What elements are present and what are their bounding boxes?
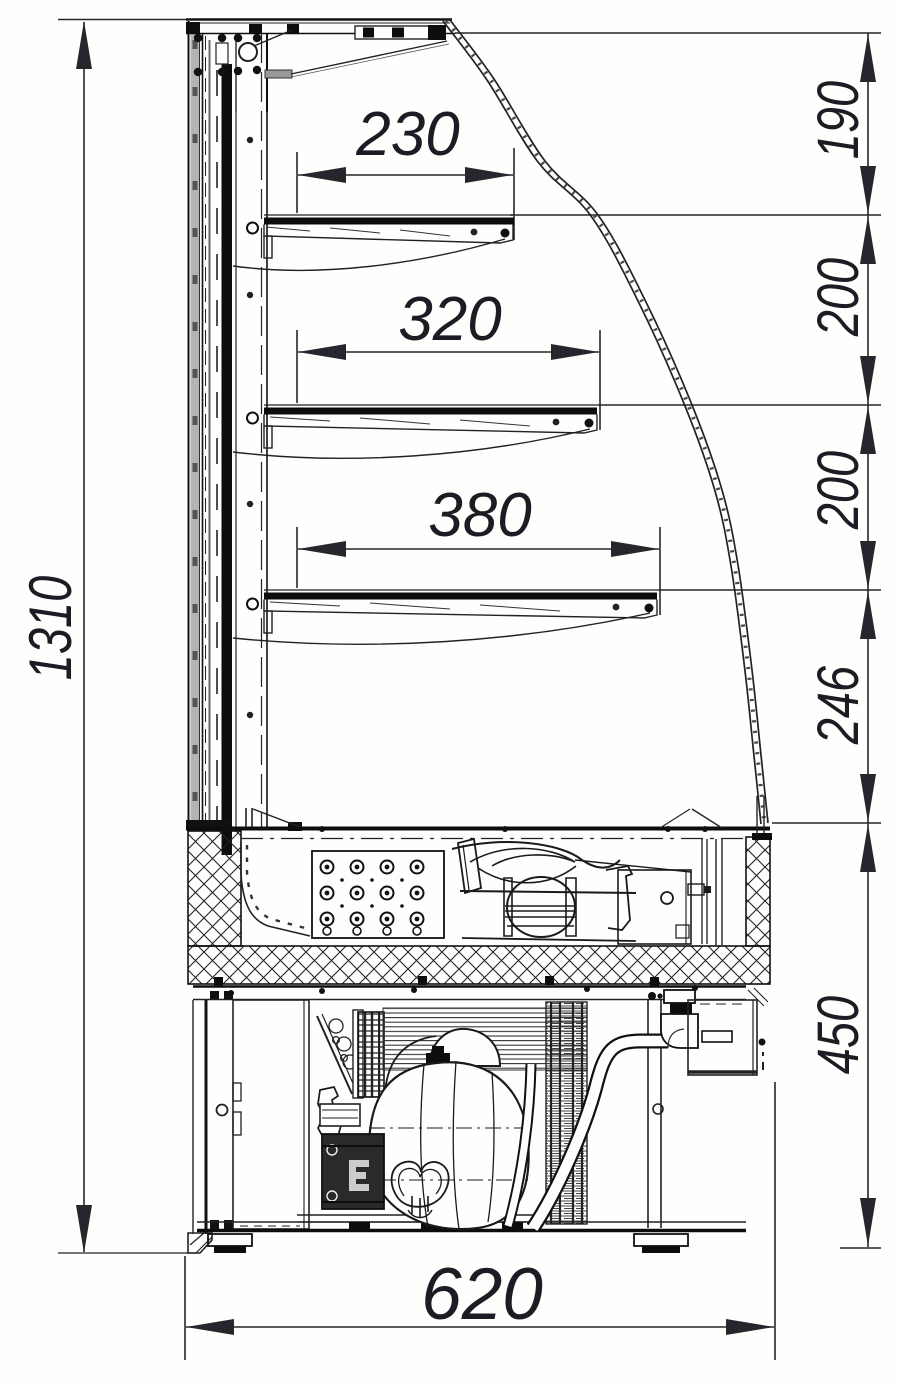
- svg-text:320: 320: [398, 285, 501, 354]
- svg-text:450: 450: [806, 995, 871, 1074]
- svg-text:200: 200: [806, 257, 871, 337]
- svg-text:230: 230: [355, 100, 459, 169]
- svg-text:380: 380: [428, 481, 531, 550]
- svg-text:200: 200: [806, 450, 871, 530]
- svg-text:620: 620: [421, 1254, 543, 1335]
- svg-text:1310: 1310: [18, 576, 85, 681]
- svg-text:246: 246: [806, 665, 871, 745]
- svg-text:190: 190: [806, 80, 871, 159]
